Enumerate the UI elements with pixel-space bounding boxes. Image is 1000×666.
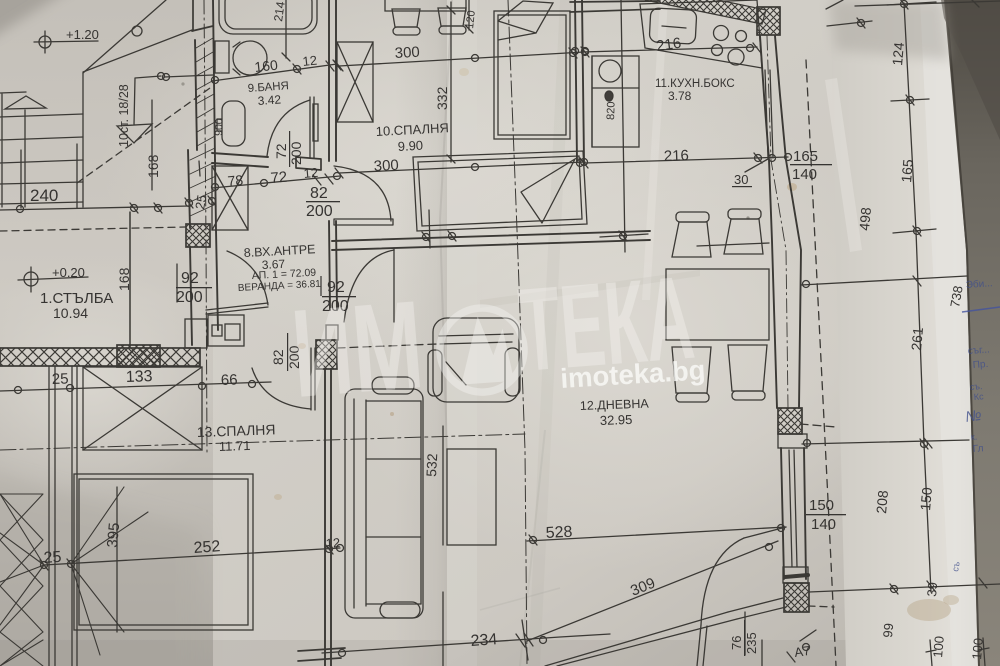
svg-text:140: 140 — [811, 516, 836, 533]
svg-text:92: 92 — [181, 270, 199, 287]
svg-text:Пр.: Пр. — [972, 359, 988, 371]
svg-text:32.95: 32.95 — [600, 412, 633, 428]
svg-text:съ.: съ. — [969, 381, 982, 392]
svg-text:72: 72 — [270, 169, 288, 187]
svg-text:25: 25 — [52, 370, 69, 388]
svg-text:съ: съ — [950, 560, 962, 572]
svg-text:234: 234 — [470, 631, 498, 650]
svg-text:120: 120 — [464, 10, 478, 30]
svg-text:332: 332 — [434, 86, 450, 110]
svg-text:9.90: 9.90 — [397, 138, 423, 154]
svg-text:25: 25 — [43, 549, 62, 567]
svg-text:3.78: 3.78 — [668, 89, 692, 103]
svg-text:216: 216 — [655, 35, 682, 55]
svg-text:12.ДНЕВНА: 12.ДНЕВНА — [580, 397, 650, 413]
svg-text:30: 30 — [734, 172, 748, 187]
svg-text:528: 528 — [545, 524, 573, 542]
svg-text:498: 498 — [856, 206, 874, 231]
svg-text:240: 240 — [30, 186, 58, 205]
svg-text:150: 150 — [809, 497, 834, 514]
svg-text:72: 72 — [273, 143, 289, 159]
svg-text:252: 252 — [193, 538, 221, 557]
svg-text:78: 78 — [227, 172, 244, 189]
svg-text:№: № — [964, 407, 982, 426]
svg-text:+0.20: +0.20 — [52, 265, 85, 280]
svg-text:140: 140 — [792, 166, 817, 183]
svg-text:395: 395 — [104, 522, 123, 548]
svg-text:200: 200 — [176, 289, 203, 306]
svg-text:165: 165 — [793, 148, 818, 165]
svg-text:Эби...: Эби... — [965, 277, 993, 291]
svg-text:100: 100 — [969, 637, 986, 660]
svg-text:к.: к. — [970, 432, 977, 442]
svg-text:168: 168 — [145, 154, 161, 178]
svg-text:216: 216 — [664, 147, 690, 165]
svg-text:3.42: 3.42 — [257, 92, 282, 108]
svg-text:100: 100 — [930, 635, 947, 658]
svg-text:168: 168 — [116, 267, 132, 291]
svg-text:124: 124 — [889, 41, 907, 66]
svg-text:82: 82 — [310, 185, 328, 202]
svg-text:532: 532 — [423, 453, 440, 477]
svg-text:200: 200 — [306, 203, 333, 220]
svg-text:ИМ: ИМ — [287, 274, 428, 424]
svg-text:12: 12 — [325, 535, 340, 551]
svg-text:208: 208 — [873, 489, 891, 514]
svg-text:12: 12 — [303, 165, 319, 181]
svg-text:160: 160 — [254, 57, 279, 75]
svg-text:300: 300 — [394, 44, 420, 62]
svg-text:150: 150 — [917, 486, 935, 511]
svg-text:133: 133 — [126, 368, 153, 386]
svg-text:А7: А7 — [793, 643, 811, 660]
svg-text:25: 25 — [192, 194, 209, 211]
svg-text:165: 165 — [898, 158, 916, 183]
svg-text:82: 82 — [270, 349, 286, 365]
svg-text:200: 200 — [288, 141, 304, 165]
svg-text:214: 214 — [271, 0, 288, 22]
svg-text:235: 235 — [744, 632, 759, 654]
svg-text:76: 76 — [729, 636, 744, 650]
svg-text:Кс: Кс — [973, 391, 984, 402]
svg-text:10.94: 10.94 — [53, 305, 88, 321]
svg-text:99: 99 — [880, 623, 896, 639]
svg-text:Гл: Гл — [972, 443, 984, 455]
svg-text:261: 261 — [908, 326, 926, 351]
svg-text:съг...: съг... — [967, 344, 990, 357]
svg-text:11.71: 11.71 — [219, 438, 251, 454]
svg-text:39: 39 — [924, 582, 940, 598]
svg-text:820: 820 — [605, 101, 618, 120]
svg-text:66: 66 — [221, 371, 238, 389]
svg-text:12: 12 — [302, 53, 318, 69]
svg-text:+1.20: +1.20 — [66, 27, 99, 42]
svg-text:10ст. 18/28: 10ст. 18/28 — [117, 84, 131, 147]
svg-text:11.КУХН.БОКС: 11.КУХН.БОКС — [655, 78, 735, 90]
svg-text:900: 900 — [213, 118, 226, 136]
svg-text:300: 300 — [373, 157, 399, 175]
svg-text:13.СПАЛНЯ: 13.СПАЛНЯ — [197, 421, 276, 440]
